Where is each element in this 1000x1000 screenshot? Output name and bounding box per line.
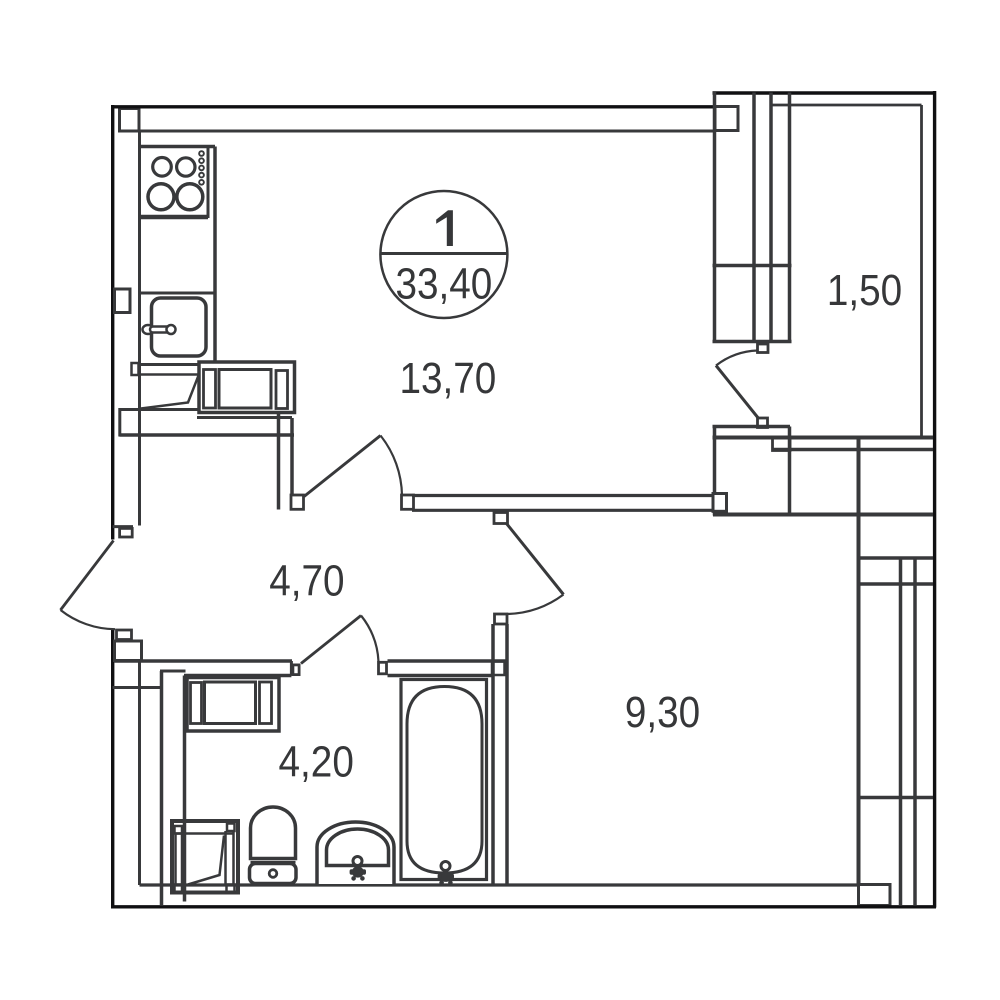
svg-text:1,50: 1,50 [827,265,902,315]
svg-text:33,40: 33,40 [395,258,492,308]
svg-text:9,30: 9,30 [625,687,700,737]
svg-text:4,70: 4,70 [269,555,344,605]
svg-text:4,20: 4,20 [279,736,354,786]
svg-text:13,70: 13,70 [399,353,496,403]
